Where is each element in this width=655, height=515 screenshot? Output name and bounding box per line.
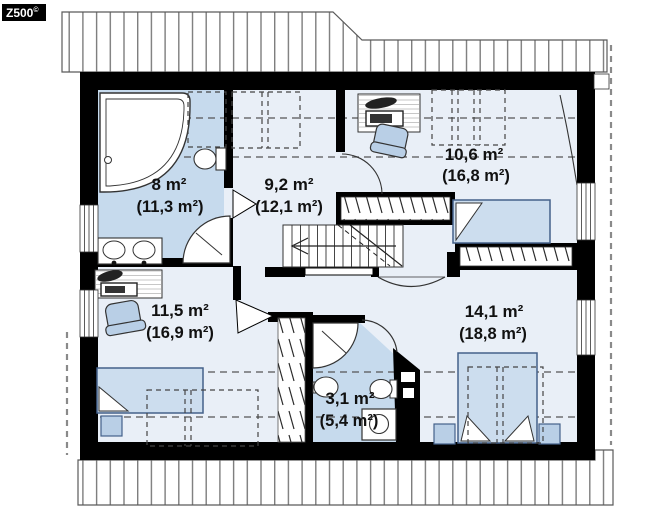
stair-railing — [305, 268, 373, 275]
label-bath-bottom-gross: (5,4 m²) — [320, 412, 379, 430]
label-hall-area: 9,2 m² — [264, 175, 313, 194]
label-bedroom-left-gross: (16,9 m²) — [146, 324, 214, 342]
label-bedroom-right-gross: (16,8 m²) — [442, 167, 510, 185]
roof-eave-top — [62, 12, 607, 72]
wall-wardrobe-bath — [305, 313, 313, 442]
bathtub-faucet-icon — [105, 157, 112, 164]
label-bedroom-right-area: 10,6 m² — [445, 145, 504, 164]
window-right-2 — [577, 300, 595, 355]
label-bedroom-master-gross: (18,8 m²) — [459, 325, 527, 343]
label-bedroom-left-area: 11,5 m² — [151, 301, 209, 320]
label-hall-gross: (12,1 m²) — [255, 198, 323, 216]
nightstand — [539, 424, 560, 444]
window-left-1 — [80, 205, 98, 252]
chimney-top-right — [594, 74, 609, 89]
nightstand — [434, 424, 455, 444]
toilet-top — [194, 149, 216, 169]
nightstand — [101, 416, 122, 436]
toilet-tank — [216, 148, 226, 170]
label-bath-bottom-area: 3,1 m² — [325, 389, 374, 408]
wall-hall-bedroom-left — [233, 266, 241, 300]
wall-under-stairs-left — [265, 267, 305, 277]
floor-plan-page: 8 m² (11,3 m²) 9,2 m² (12,1 m²) 10,6 m² … — [0, 0, 655, 515]
brand-logo: Z500© — [2, 4, 46, 21]
label-bedroom-master-area: 14,1 m² — [465, 302, 524, 321]
floor-plan-svg: 8 m² (11,3 m²) 9,2 m² (12,1 m²) 10,6 m² … — [0, 0, 655, 515]
label-bath-top-area: 8 m² — [152, 175, 187, 194]
label-bath-top-gross: (11,3 m²) — [137, 198, 204, 216]
window-left-2 — [80, 290, 98, 337]
staircase — [283, 225, 403, 275]
wall-bath-bottom-top — [305, 315, 365, 323]
wall-hall-bedroom-right — [336, 90, 345, 152]
window-right-1 — [577, 183, 595, 240]
